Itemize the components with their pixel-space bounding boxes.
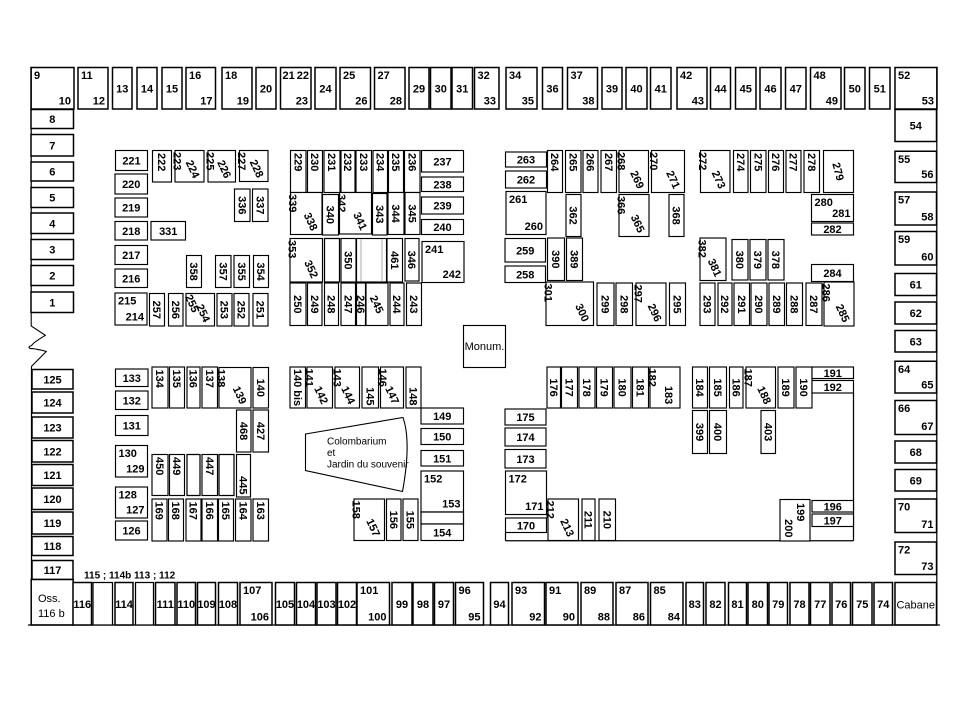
svg-text:91: 91 xyxy=(549,585,561,597)
svg-text:380: 380 xyxy=(733,251,745,269)
svg-text:180: 180 xyxy=(616,378,628,396)
svg-text:179: 179 xyxy=(598,378,610,396)
svg-text:197: 197 xyxy=(824,515,842,527)
svg-text:78: 78 xyxy=(793,599,805,611)
svg-text:152: 152 xyxy=(424,474,442,486)
svg-text:Jardin du souvenir: Jardin du souvenir xyxy=(327,460,409,471)
svg-text:87: 87 xyxy=(619,585,631,597)
svg-text:123: 123 xyxy=(43,423,61,435)
svg-text:133: 133 xyxy=(123,373,141,385)
svg-text:14: 14 xyxy=(141,83,154,95)
svg-text:280: 280 xyxy=(815,197,833,209)
svg-text:57: 57 xyxy=(898,195,910,207)
svg-text:281: 281 xyxy=(832,208,850,220)
svg-text:297: 297 xyxy=(632,285,644,303)
svg-text:210: 210 xyxy=(600,511,612,529)
svg-text:122: 122 xyxy=(43,446,61,458)
svg-text:450: 450 xyxy=(153,457,165,475)
svg-text:447: 447 xyxy=(203,457,215,475)
svg-text:167: 167 xyxy=(187,502,199,520)
svg-text:155: 155 xyxy=(404,511,416,529)
svg-text:400: 400 xyxy=(711,423,723,441)
svg-text:13: 13 xyxy=(116,83,128,95)
svg-text:214: 214 xyxy=(126,312,145,324)
svg-text:66: 66 xyxy=(898,403,910,415)
svg-text:30: 30 xyxy=(435,83,447,95)
svg-text:132: 132 xyxy=(123,395,141,407)
svg-text:126: 126 xyxy=(122,526,140,538)
svg-text:168: 168 xyxy=(169,502,181,520)
svg-text:110: 110 xyxy=(177,599,195,611)
svg-text:5: 5 xyxy=(49,193,55,205)
svg-text:89: 89 xyxy=(584,585,596,597)
svg-text:353: 353 xyxy=(286,240,298,258)
svg-text:237: 237 xyxy=(433,156,451,168)
svg-text:54: 54 xyxy=(910,121,923,133)
svg-text:350: 350 xyxy=(342,251,354,269)
svg-text:222: 222 xyxy=(155,153,167,171)
svg-text:177: 177 xyxy=(563,378,575,396)
svg-text:97: 97 xyxy=(438,599,450,611)
svg-text:121: 121 xyxy=(43,470,61,482)
svg-text:115 ; 114b 113 ; 112: 115 ; 114b 113 ; 112 xyxy=(84,571,176,582)
svg-text:340: 340 xyxy=(324,206,336,224)
svg-text:265: 265 xyxy=(566,153,578,171)
svg-text:61: 61 xyxy=(910,280,922,292)
svg-text:216: 216 xyxy=(122,273,140,285)
svg-text:3: 3 xyxy=(49,245,55,257)
svg-text:238: 238 xyxy=(433,179,451,191)
svg-text:345: 345 xyxy=(406,204,418,222)
svg-text:262: 262 xyxy=(517,175,535,187)
svg-text:51: 51 xyxy=(874,83,886,95)
svg-text:403: 403 xyxy=(761,423,773,441)
svg-text:275: 275 xyxy=(751,153,763,171)
svg-text:355: 355 xyxy=(235,262,247,280)
svg-text:103: 103 xyxy=(317,599,335,611)
svg-text:346: 346 xyxy=(405,251,417,269)
svg-text:119: 119 xyxy=(44,518,62,530)
svg-text:196: 196 xyxy=(824,501,842,513)
svg-text:50: 50 xyxy=(849,83,861,95)
svg-text:Oss.: Oss. xyxy=(38,593,61,605)
svg-text:Cabane: Cabane xyxy=(896,600,935,612)
svg-text:141: 141 xyxy=(303,369,315,387)
svg-text:45: 45 xyxy=(740,83,752,95)
svg-text:63: 63 xyxy=(910,336,922,348)
svg-text:143: 143 xyxy=(331,369,343,387)
svg-text:128: 128 xyxy=(119,490,137,502)
svg-text:52: 52 xyxy=(898,70,910,82)
svg-text:337: 337 xyxy=(253,196,265,214)
svg-text:102: 102 xyxy=(338,599,356,611)
svg-text:266: 266 xyxy=(584,153,596,171)
svg-text:175: 175 xyxy=(516,412,534,424)
svg-text:468: 468 xyxy=(237,422,249,440)
svg-text:17: 17 xyxy=(200,96,212,108)
svg-text:289: 289 xyxy=(770,295,782,313)
svg-text:15: 15 xyxy=(166,83,178,95)
svg-text:82: 82 xyxy=(709,599,721,611)
svg-text:146: 146 xyxy=(376,369,388,387)
svg-text:19: 19 xyxy=(237,96,249,108)
svg-text:199: 199 xyxy=(794,503,806,521)
svg-text:183: 183 xyxy=(662,386,674,404)
svg-text:138: 138 xyxy=(215,369,227,387)
svg-text:124: 124 xyxy=(43,398,62,410)
svg-text:151: 151 xyxy=(433,453,451,465)
svg-text:7: 7 xyxy=(49,140,55,152)
svg-text:65: 65 xyxy=(921,380,933,392)
svg-text:41: 41 xyxy=(655,83,667,95)
svg-text:12: 12 xyxy=(93,96,105,108)
svg-text:38: 38 xyxy=(582,96,594,108)
svg-text:81: 81 xyxy=(731,599,743,611)
svg-text:20: 20 xyxy=(260,83,272,95)
svg-text:236: 236 xyxy=(405,153,417,171)
svg-text:290: 290 xyxy=(752,295,764,313)
svg-text:354: 354 xyxy=(254,262,266,281)
svg-text:49: 49 xyxy=(826,96,838,108)
svg-text:362: 362 xyxy=(567,206,579,224)
svg-text:267: 267 xyxy=(602,153,614,171)
svg-text:60: 60 xyxy=(921,252,933,264)
svg-text:211: 211 xyxy=(582,511,594,529)
svg-text:268: 268 xyxy=(615,152,627,170)
svg-text:28: 28 xyxy=(390,96,402,108)
svg-text:163: 163 xyxy=(254,502,266,520)
svg-text:217: 217 xyxy=(122,250,140,262)
svg-text:Monum.: Monum. xyxy=(465,341,505,353)
svg-text:109: 109 xyxy=(197,599,215,611)
svg-text:181: 181 xyxy=(634,378,646,396)
svg-text:1: 1 xyxy=(49,297,55,309)
svg-text:8: 8 xyxy=(49,114,55,126)
svg-text:258: 258 xyxy=(516,269,534,281)
svg-text:344: 344 xyxy=(389,204,401,223)
svg-text:153: 153 xyxy=(442,499,460,511)
svg-text:231: 231 xyxy=(325,153,337,171)
svg-text:243: 243 xyxy=(407,295,419,313)
svg-text:62: 62 xyxy=(910,308,922,320)
svg-text:68: 68 xyxy=(910,447,922,459)
svg-text:242: 242 xyxy=(443,269,461,281)
svg-text:342: 342 xyxy=(335,194,347,212)
svg-text:88: 88 xyxy=(598,612,610,624)
svg-text:358: 358 xyxy=(187,262,199,280)
svg-text:158: 158 xyxy=(350,501,362,519)
svg-text:247: 247 xyxy=(341,295,353,313)
svg-text:84: 84 xyxy=(668,612,681,624)
svg-text:248: 248 xyxy=(325,295,337,313)
svg-text:11: 11 xyxy=(81,70,93,82)
svg-text:189: 189 xyxy=(779,378,791,396)
svg-text:127: 127 xyxy=(126,505,144,517)
svg-text:24: 24 xyxy=(319,83,332,95)
svg-text:69: 69 xyxy=(910,475,922,487)
svg-text:35: 35 xyxy=(522,96,534,108)
svg-text:295: 295 xyxy=(671,295,683,313)
svg-text:263: 263 xyxy=(517,155,535,167)
svg-text:270: 270 xyxy=(647,152,659,170)
svg-text:145: 145 xyxy=(363,387,375,405)
svg-text:240: 240 xyxy=(433,222,451,234)
svg-text:83: 83 xyxy=(689,599,701,611)
svg-text:389: 389 xyxy=(568,250,580,268)
svg-text:301: 301 xyxy=(542,284,554,302)
svg-text:75: 75 xyxy=(856,599,868,611)
svg-text:105: 105 xyxy=(276,599,294,611)
svg-text:235: 235 xyxy=(389,153,401,171)
svg-text:77: 77 xyxy=(814,599,826,611)
svg-text:249: 249 xyxy=(308,295,320,313)
svg-text:298: 298 xyxy=(617,295,629,313)
svg-text:125: 125 xyxy=(43,374,61,386)
svg-text:286: 286 xyxy=(820,284,832,302)
svg-text:140: 140 xyxy=(254,379,266,397)
svg-text:73: 73 xyxy=(921,561,933,573)
svg-text:76: 76 xyxy=(835,599,847,611)
svg-text:339: 339 xyxy=(286,194,298,212)
svg-text:366: 366 xyxy=(615,196,627,214)
svg-text:276: 276 xyxy=(769,153,781,171)
svg-text:et: et xyxy=(327,448,336,459)
svg-text:190: 190 xyxy=(797,378,809,396)
svg-text:184: 184 xyxy=(693,378,705,397)
svg-text:343: 343 xyxy=(373,205,385,223)
svg-text:39: 39 xyxy=(606,83,618,95)
svg-text:131: 131 xyxy=(123,421,141,433)
svg-text:22: 22 xyxy=(297,70,309,82)
svg-text:336: 336 xyxy=(235,196,247,214)
svg-text:137: 137 xyxy=(203,370,215,388)
svg-text:21: 21 xyxy=(283,70,295,82)
svg-text:233: 233 xyxy=(357,153,369,171)
svg-text:378: 378 xyxy=(769,251,781,269)
svg-text:221: 221 xyxy=(122,156,140,168)
svg-text:212: 212 xyxy=(544,501,556,519)
svg-text:390: 390 xyxy=(549,250,561,268)
svg-text:2: 2 xyxy=(49,271,55,283)
svg-text:186: 186 xyxy=(729,378,741,396)
svg-text:225: 225 xyxy=(204,152,216,170)
svg-text:399: 399 xyxy=(693,423,705,441)
svg-text:59: 59 xyxy=(898,234,910,246)
svg-text:284: 284 xyxy=(823,268,842,280)
svg-text:264: 264 xyxy=(548,153,560,172)
svg-text:136: 136 xyxy=(187,370,199,388)
svg-text:36: 36 xyxy=(546,83,558,95)
svg-text:9: 9 xyxy=(34,70,40,82)
svg-text:176: 176 xyxy=(547,378,559,396)
svg-text:104: 104 xyxy=(297,599,316,611)
svg-text:94: 94 xyxy=(493,599,506,611)
svg-text:178: 178 xyxy=(580,378,592,396)
svg-text:445: 445 xyxy=(237,476,249,494)
svg-text:278: 278 xyxy=(805,153,817,171)
svg-text:93: 93 xyxy=(515,585,527,597)
svg-text:218: 218 xyxy=(122,226,140,238)
svg-text:111: 111 xyxy=(157,599,174,611)
svg-text:37: 37 xyxy=(571,70,583,82)
svg-text:200: 200 xyxy=(782,519,794,537)
svg-text:46: 46 xyxy=(764,83,776,95)
svg-text:241: 241 xyxy=(425,244,443,256)
svg-text:182: 182 xyxy=(646,369,658,387)
svg-text:293: 293 xyxy=(701,295,713,313)
svg-text:427: 427 xyxy=(254,422,266,440)
svg-text:171: 171 xyxy=(525,501,543,513)
svg-text:90: 90 xyxy=(563,612,575,624)
svg-text:260: 260 xyxy=(525,221,543,233)
svg-text:29: 29 xyxy=(413,83,425,95)
svg-text:71: 71 xyxy=(921,519,933,531)
svg-text:229: 229 xyxy=(291,153,303,171)
svg-text:44: 44 xyxy=(714,83,727,95)
svg-text:101: 101 xyxy=(360,585,378,597)
svg-text:449: 449 xyxy=(170,457,182,475)
svg-text:16: 16 xyxy=(189,70,201,82)
svg-text:55: 55 xyxy=(898,154,910,166)
svg-text:114: 114 xyxy=(115,599,134,611)
svg-text:239: 239 xyxy=(433,201,451,213)
svg-text:253: 253 xyxy=(218,301,230,319)
svg-text:40: 40 xyxy=(630,83,642,95)
svg-text:230: 230 xyxy=(308,153,320,171)
svg-text:92: 92 xyxy=(529,612,541,624)
svg-text:120: 120 xyxy=(43,494,61,506)
svg-text:277: 277 xyxy=(787,153,799,171)
svg-text:165: 165 xyxy=(219,502,231,520)
svg-text:130: 130 xyxy=(119,448,137,460)
svg-text:42: 42 xyxy=(680,70,692,82)
svg-text:244: 244 xyxy=(390,295,402,314)
svg-text:108: 108 xyxy=(219,599,237,611)
svg-text:23: 23 xyxy=(296,96,308,108)
svg-text:64: 64 xyxy=(898,364,911,376)
svg-text:368: 368 xyxy=(670,206,682,224)
svg-text:47: 47 xyxy=(790,83,802,95)
svg-text:56: 56 xyxy=(921,169,933,181)
svg-text:106: 106 xyxy=(251,612,269,624)
svg-text:67: 67 xyxy=(921,421,933,433)
svg-text:129: 129 xyxy=(126,464,144,476)
svg-text:72: 72 xyxy=(898,545,910,557)
svg-text:32: 32 xyxy=(478,70,490,82)
svg-text:261: 261 xyxy=(509,194,527,206)
svg-text:292: 292 xyxy=(718,295,730,313)
svg-text:256: 256 xyxy=(169,301,181,319)
svg-text:156: 156 xyxy=(387,511,399,529)
svg-text:219: 219 xyxy=(122,203,140,215)
svg-text:27: 27 xyxy=(378,70,390,82)
svg-text:357: 357 xyxy=(216,262,228,280)
svg-text:53: 53 xyxy=(922,96,934,108)
svg-text:58: 58 xyxy=(921,212,933,224)
svg-text:149: 149 xyxy=(433,411,451,423)
svg-text:173: 173 xyxy=(516,454,534,466)
svg-text:215: 215 xyxy=(118,296,136,308)
svg-text:169: 169 xyxy=(153,502,165,520)
svg-text:257: 257 xyxy=(150,301,162,319)
svg-text:272: 272 xyxy=(696,152,708,170)
svg-text:116: 116 xyxy=(73,599,91,611)
svg-text:135: 135 xyxy=(170,370,182,388)
svg-text:154: 154 xyxy=(433,527,452,539)
svg-text:10: 10 xyxy=(59,96,71,108)
svg-text:170: 170 xyxy=(517,520,535,532)
svg-text:98: 98 xyxy=(417,599,429,611)
svg-text:223: 223 xyxy=(171,152,183,170)
svg-text:174: 174 xyxy=(516,432,535,444)
svg-text:99: 99 xyxy=(396,599,408,611)
svg-text:26: 26 xyxy=(355,96,367,108)
svg-text:100: 100 xyxy=(368,612,386,624)
svg-text:80: 80 xyxy=(752,599,764,611)
svg-text:117: 117 xyxy=(44,565,62,577)
svg-text:246: 246 xyxy=(354,295,366,313)
svg-text:232: 232 xyxy=(341,153,353,171)
svg-text:227: 227 xyxy=(235,152,247,170)
svg-text:187: 187 xyxy=(742,369,754,387)
svg-text:118: 118 xyxy=(44,541,62,553)
svg-text:291: 291 xyxy=(735,295,747,313)
svg-text:116 b: 116 b xyxy=(38,608,65,620)
svg-text:379: 379 xyxy=(751,251,763,269)
svg-text:96: 96 xyxy=(459,585,471,597)
svg-text:172: 172 xyxy=(509,474,527,486)
svg-text:259: 259 xyxy=(516,245,534,257)
svg-text:461: 461 xyxy=(388,251,400,269)
svg-text:251: 251 xyxy=(254,301,266,319)
svg-text:4: 4 xyxy=(49,218,56,230)
svg-text:107: 107 xyxy=(243,585,261,597)
svg-text:274: 274 xyxy=(734,153,746,172)
svg-text:192: 192 xyxy=(824,382,842,394)
svg-text:140 bis: 140 bis xyxy=(291,369,303,406)
svg-text:148: 148 xyxy=(407,387,419,405)
svg-text:43: 43 xyxy=(692,96,704,108)
svg-text:288: 288 xyxy=(788,295,800,313)
svg-text:134: 134 xyxy=(153,370,165,389)
svg-text:48: 48 xyxy=(814,70,826,82)
svg-text:185: 185 xyxy=(711,378,723,396)
svg-text:6: 6 xyxy=(49,167,55,179)
svg-text:166: 166 xyxy=(203,502,215,520)
svg-text:33: 33 xyxy=(484,96,496,108)
svg-text:234: 234 xyxy=(373,153,385,172)
svg-text:287: 287 xyxy=(807,295,819,313)
svg-text:74: 74 xyxy=(877,599,890,611)
svg-text:70: 70 xyxy=(898,502,910,514)
svg-text:220: 220 xyxy=(122,179,140,191)
svg-text:95: 95 xyxy=(468,612,480,624)
svg-text:18: 18 xyxy=(225,70,237,82)
svg-text:31: 31 xyxy=(456,83,468,95)
svg-text:382: 382 xyxy=(696,240,708,258)
svg-text:299: 299 xyxy=(599,295,611,313)
svg-text:86: 86 xyxy=(633,612,645,624)
svg-text:191: 191 xyxy=(824,368,842,380)
svg-text:Colombarium: Colombarium xyxy=(327,437,386,448)
svg-text:282: 282 xyxy=(823,224,841,236)
svg-text:150: 150 xyxy=(433,432,451,444)
svg-text:34: 34 xyxy=(509,70,522,82)
svg-text:250: 250 xyxy=(291,295,303,313)
svg-text:85: 85 xyxy=(654,585,666,597)
svg-text:252: 252 xyxy=(235,301,247,319)
svg-text:25: 25 xyxy=(343,70,355,82)
